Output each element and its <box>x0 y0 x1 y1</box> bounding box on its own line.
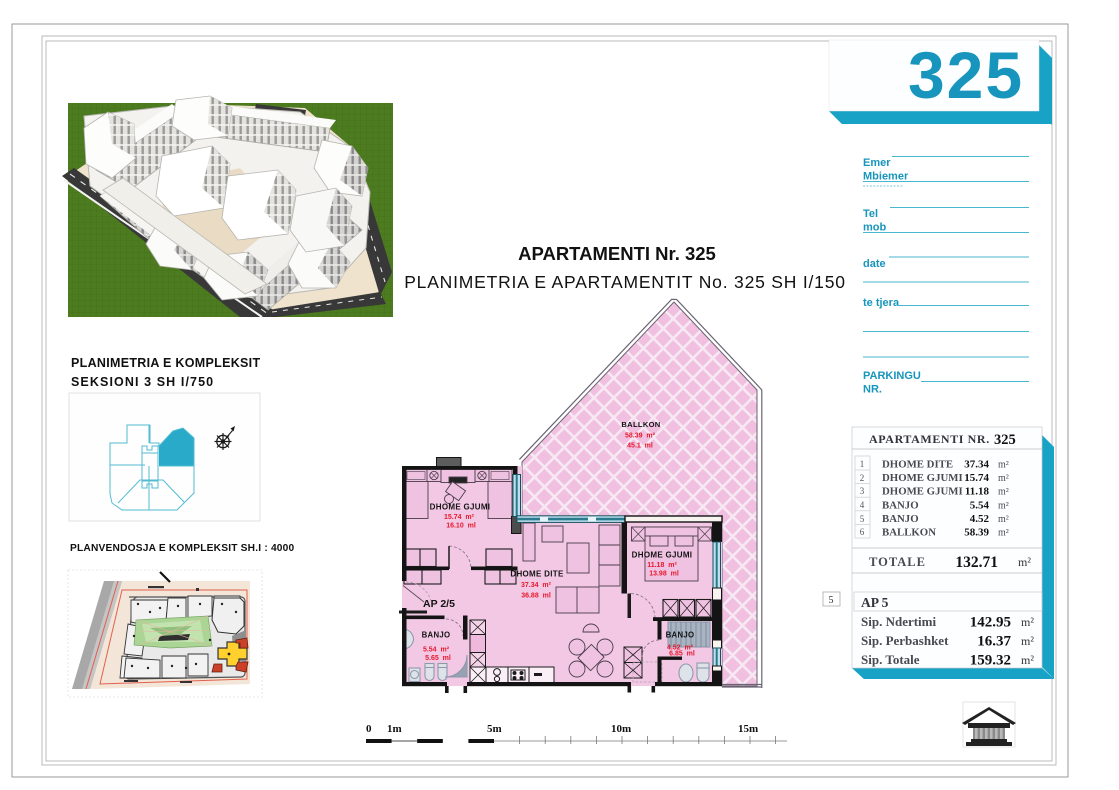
svg-text:m²: m² <box>1021 615 1034 629</box>
svg-text:6: 6 <box>860 527 865 537</box>
svg-text:PLANVENDOSJA E KOMPLEKSIT SH.I: PLANVENDOSJA E KOMPLEKSIT SH.I : 4000 <box>70 543 295 554</box>
svg-text:15.74 m²: 15.74 m² <box>444 514 475 521</box>
svg-text:159.32: 159.32 <box>970 653 1011 669</box>
svg-text:36.88 ml: 36.88 ml <box>521 593 551 600</box>
svg-text:3: 3 <box>860 486 865 496</box>
svg-text:132.71: 132.71 <box>955 554 998 571</box>
svg-text:DHOME DITE: DHOME DITE <box>882 459 953 471</box>
svg-text:16.37: 16.37 <box>977 634 1011 650</box>
svg-text:5.54: 5.54 <box>970 499 990 511</box>
svg-text:325: 325 <box>908 38 1024 112</box>
svg-text:1: 1 <box>860 459 865 469</box>
svg-text:142.95: 142.95 <box>970 615 1011 631</box>
svg-text:4.52: 4.52 <box>970 513 990 525</box>
svg-text:BANJO: BANJO <box>882 499 919 511</box>
svg-text:DHOME GJUMI: DHOME GJUMI <box>882 472 963 484</box>
svg-text:45.1 ml: 45.1 ml <box>627 443 653 450</box>
svg-text:37.34 m²: 37.34 m² <box>521 582 552 589</box>
svg-text:11.18: 11.18 <box>965 486 990 498</box>
svg-text:m²: m² <box>998 528 1009 539</box>
svg-text:APARTAMENTI Nr. 325: APARTAMENTI Nr. 325 <box>518 243 716 264</box>
svg-text:15.74: 15.74 <box>964 472 989 484</box>
svg-text:Tel: Tel <box>863 208 878 220</box>
svg-text:5m: 5m <box>487 723 502 735</box>
svg-text:5: 5 <box>829 595 834 606</box>
svg-text:Sip. Ndertimi: Sip. Ndertimi <box>861 614 937 629</box>
svg-text:Sip. Totale: Sip. Totale <box>861 652 920 667</box>
svg-text:325: 325 <box>994 432 1016 448</box>
svg-text:TOTALE: TOTALE <box>869 555 926 569</box>
svg-text:DHOME GJUMI: DHOME GJUMI <box>430 503 491 512</box>
svg-text:5: 5 <box>860 514 865 524</box>
svg-text:SEKSIONI 3 SH I/750: SEKSIONI 3 SH I/750 <box>71 375 214 389</box>
svg-text:BANJO: BANJO <box>422 631 451 640</box>
svg-text:0: 0 <box>366 723 372 735</box>
svg-text:m²: m² <box>998 473 1009 484</box>
svg-text:4: 4 <box>860 500 865 510</box>
svg-text:m²: m² <box>998 460 1009 471</box>
svg-text:m²: m² <box>1021 634 1034 648</box>
svg-text:BANJO: BANJO <box>666 631 695 640</box>
svg-text:BANJO: BANJO <box>882 513 919 525</box>
svg-text:BALLKON: BALLKON <box>621 420 660 429</box>
svg-text:2: 2 <box>860 473 865 483</box>
svg-text:m²: m² <box>998 487 1009 498</box>
svg-text:6.85 ml: 6.85 ml <box>669 651 695 658</box>
svg-text:Mbiemer: Mbiemer <box>863 171 909 183</box>
svg-text:mob: mob <box>863 222 887 234</box>
svg-text:BALLKON: BALLKON <box>882 527 936 539</box>
svg-text:1m: 1m <box>387 723 402 735</box>
svg-text:DHOME GJUMI: DHOME GJUMI <box>632 551 693 560</box>
svg-text:NR.: NR. <box>863 384 882 396</box>
svg-text:37.34: 37.34 <box>964 459 989 471</box>
svg-text:PARKINGU: PARKINGU <box>863 370 921 382</box>
svg-text:AP 5: AP 5 <box>861 595 889 610</box>
svg-text:16.10 ml: 16.10 ml <box>446 523 476 530</box>
svg-text:te tjera: te tjera <box>863 297 900 309</box>
svg-text:m²: m² <box>998 500 1009 511</box>
svg-text:Sip. Perbashket: Sip. Perbashket <box>861 633 949 648</box>
svg-text:58.39: 58.39 <box>964 527 989 539</box>
svg-text:date: date <box>863 258 886 270</box>
svg-text:13.98 ml: 13.98 ml <box>649 571 679 578</box>
svg-text:AP 2/5: AP 2/5 <box>423 598 455 610</box>
svg-text:58.39 m²: 58.39 m² <box>625 433 656 440</box>
svg-text:PLANIMETRIA E APARTAMENTIT No.: PLANIMETRIA E APARTAMENTIT No. 325 SH I/… <box>404 272 846 292</box>
svg-text:DHOME GJUMI: DHOME GJUMI <box>882 486 963 498</box>
svg-text:m²: m² <box>1018 555 1031 569</box>
svg-text:m²: m² <box>998 514 1009 525</box>
svg-text:10m: 10m <box>611 723 631 735</box>
svg-text:m²: m² <box>1021 653 1034 667</box>
svg-text:Emer: Emer <box>863 157 891 169</box>
svg-text:5.54 m²: 5.54 m² <box>423 647 450 654</box>
svg-text:11.18 m²: 11.18 m² <box>647 562 677 569</box>
svg-text:PLANIMETRIA E KOMPLEKSIT: PLANIMETRIA E KOMPLEKSIT <box>71 356 260 370</box>
svg-text:DHOME DITE: DHOME DITE <box>510 570 564 579</box>
svg-text:15m: 15m <box>738 723 758 735</box>
svg-text:APARTAMENTI NR.: APARTAMENTI NR. <box>869 432 990 446</box>
svg-text:5.65 ml: 5.65 ml <box>425 655 451 662</box>
